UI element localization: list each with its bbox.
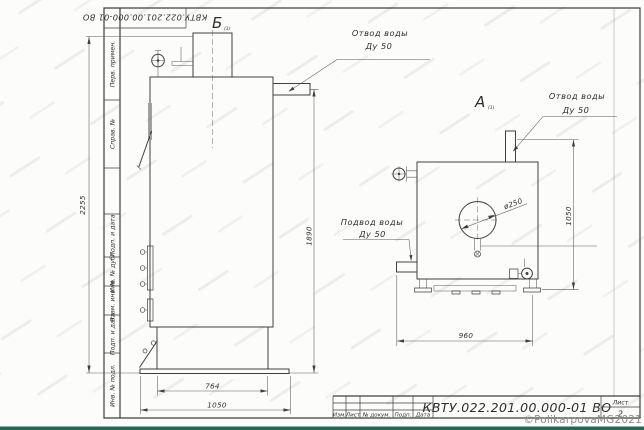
title-doc-number: КВТУ.022.201.00.000-01 ВО: [423, 400, 612, 415]
view-label-b-note: (1): [224, 26, 231, 32]
dim-text-1050-bottom: 1050: [207, 401, 227, 410]
sheet-label: Лист: [612, 400, 629, 407]
rev-col-list: Лист: [345, 412, 361, 418]
outlet-label-line1: Отвод воды: [352, 28, 408, 38]
inlet-label-line2: Ду 50: [358, 229, 386, 239]
rev-col-izm: Изм.: [333, 412, 346, 418]
inlet-label-line1: Подвод воды: [341, 217, 403, 227]
outlet-label-line2: Ду 50: [365, 41, 393, 51]
margin-field-podp-data-2: Подп. и дата: [110, 313, 117, 355]
dim-text-1890: 1890: [305, 226, 314, 246]
outlet-right-label-line2: Ду 50: [562, 105, 590, 115]
margin-field-podp-data-1: Подп. и дата: [110, 214, 117, 256]
dim-text-1050-right: 1050: [564, 206, 573, 226]
rev-col-podp: Подп.: [395, 412, 412, 418]
dim-text-960: 960: [459, 331, 474, 340]
engineering-drawing: КВТУ.022.201.00.000-01 ВО Перв. примен. …: [0, 0, 644, 430]
rev-col-dokum: № докум.: [362, 412, 391, 418]
watermark-signature: ©PolikarpovaMG2021: [523, 414, 642, 426]
view-label-a-note: (1): [488, 105, 495, 111]
dim-text-764: 764: [205, 382, 220, 391]
outlet-right-label-line1: Отвод воды: [549, 91, 605, 101]
margin-field-inv-podl: Инв. № подл.: [110, 364, 117, 407]
top-doc-number: КВТУ.022.201.00.000-01 ВО: [82, 12, 207, 22]
margin-field-sprav-n: Справ. №: [110, 119, 117, 149]
view-label-a: А: [474, 93, 485, 111]
drawing-sheet: КВТУ.022.201.00.000-01 ВО Перв. примен. …: [0, 0, 644, 430]
view-label-b: Б: [212, 14, 222, 32]
watermark-texture: [0, 0, 644, 425]
margin-field-perv-primen: Перв. примен.: [110, 41, 117, 87]
bottom-edge-bar: [0, 427, 644, 430]
dim-text-2255: 2255: [78, 195, 87, 215]
